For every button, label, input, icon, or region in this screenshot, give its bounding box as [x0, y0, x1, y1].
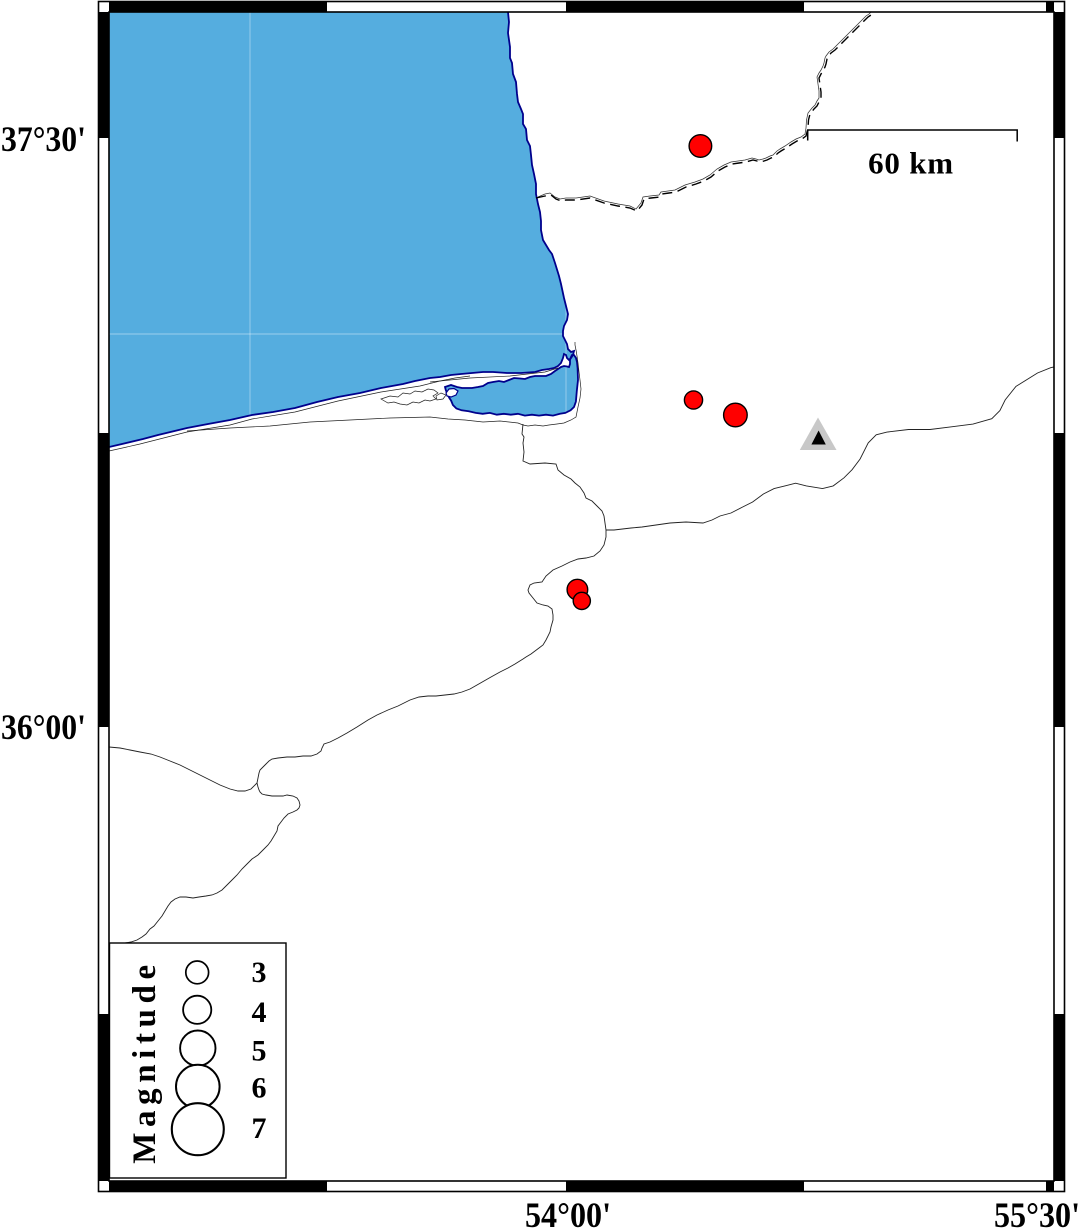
- svg-text:5: 5: [252, 1034, 267, 1067]
- svg-text:36°00': 36°00': [1, 707, 86, 747]
- svg-text:7: 7: [252, 1112, 267, 1145]
- svg-text:3: 3: [252, 956, 267, 989]
- svg-text:60 km: 60 km: [868, 146, 954, 181]
- svg-text:55°30': 55°30': [994, 1195, 1080, 1228]
- svg-text:Magnitude: Magnitude: [127, 959, 163, 1163]
- svg-text:6: 6: [252, 1072, 267, 1105]
- svg-text:4: 4: [252, 996, 267, 1029]
- svg-text:37°30': 37°30': [1, 119, 86, 159]
- svg-text:54°00': 54°00': [525, 1195, 611, 1228]
